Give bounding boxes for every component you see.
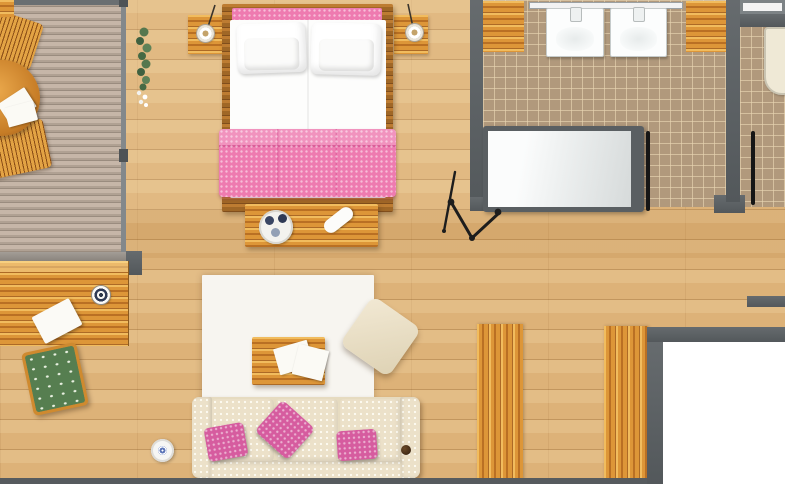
bed-pillow-left-inner — [244, 38, 300, 71]
sofa-pillow-1 — [203, 422, 248, 462]
serving-tray — [259, 210, 293, 244]
pendant-lamp-right — [406, 24, 423, 41]
void-top-wall — [647, 327, 785, 342]
target-cushion — [92, 286, 110, 304]
sink-basin — [556, 27, 594, 51]
glass-wall-joint-mid — [119, 149, 128, 162]
bath-cabinet-right — [686, 1, 726, 52]
bathtub — [483, 126, 644, 212]
tray-cup-1 — [265, 216, 274, 225]
sideboard-1 — [477, 324, 523, 481]
pine-cone — [401, 445, 411, 455]
wc-window — [740, 0, 785, 14]
bed-pillow-right-inner — [319, 39, 374, 71]
tray-cup-2 — [278, 214, 287, 223]
bed-pillow-left — [236, 22, 307, 74]
platform-top-band — [0, 261, 128, 272]
bed-pink-blanket — [219, 129, 396, 197]
void-left-wall — [647, 342, 663, 484]
bed-pillow-right — [310, 22, 381, 76]
void-area — [663, 342, 785, 484]
bath-cabinet-left — [481, 1, 524, 52]
sofa-backrest — [210, 460, 402, 478]
faucet-icon — [633, 7, 645, 22]
tray-cup-3 — [271, 228, 280, 237]
balcony-top-wall — [0, 0, 121, 5]
bottom-wall — [0, 478, 647, 484]
sofa-pillow-3 — [336, 429, 378, 462]
hallway-floor-band — [126, 210, 785, 258]
toilet — [764, 27, 785, 95]
bathroom-door — [646, 131, 650, 211]
sink-basin — [620, 27, 657, 51]
sofa — [192, 397, 420, 478]
green-stool-cushion — [25, 345, 86, 412]
pendant-lamp-left — [197, 25, 214, 42]
floor-plan — [0, 0, 785, 484]
balcony-corner-piece — [0, 0, 14, 17]
wc-top-wall — [740, 14, 785, 27]
round-stool — [151, 439, 174, 462]
faucet-icon — [570, 7, 582, 22]
sink-right — [610, 8, 667, 57]
sink-left — [546, 8, 604, 57]
deck-edge-frame — [0, 252, 127, 261]
wc-divider-wall — [726, 0, 740, 202]
glass-wall — [121, 0, 126, 252]
wc-door — [751, 131, 755, 205]
bathroom-left-wall — [470, 0, 483, 211]
glass-wall-joint-top — [119, 0, 128, 7]
hall-right-wall-piece — [747, 296, 785, 307]
round-stool-motif — [158, 446, 167, 455]
sofa-arm-right — [400, 397, 420, 478]
sideboard-2 — [604, 326, 648, 482]
